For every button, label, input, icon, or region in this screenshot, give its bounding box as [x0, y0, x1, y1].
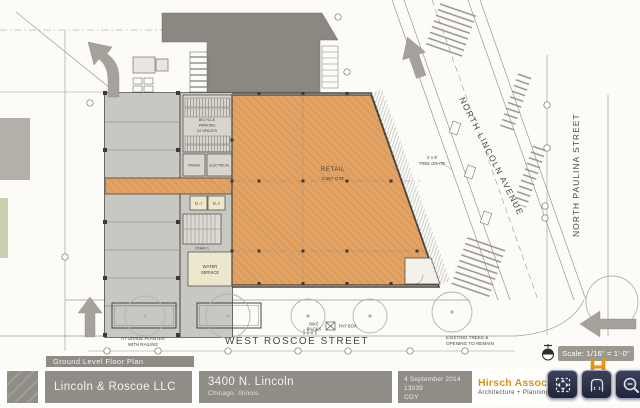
bike-room-label-1: BICYCLE: [199, 118, 216, 122]
planting-strip: [0, 198, 8, 258]
zoom-out-button[interactable]: [615, 370, 640, 399]
project-meta-box: 4 September 2014 13039 CGY: [398, 371, 472, 403]
pan-button[interactable]: ‹ ›: [581, 370, 612, 399]
tree-grate-note-2: TREE GRATE: [419, 161, 446, 166]
fit-arrows-icon: [557, 379, 569, 391]
pan-chevrons: ‹ ›: [593, 383, 601, 392]
bike-racks-note-2: RACKS: [307, 327, 322, 332]
bike-room-label-3: 24 SPACES: [197, 129, 218, 133]
street-label-paulina: NORTH PAULINA STREET: [571, 113, 581, 237]
neighbor-building-west: [0, 118, 30, 180]
water-room-label-2: SERVICE: [201, 270, 220, 275]
corridor: [105, 178, 232, 194]
street-label-roscoe: WEST ROSCOE STREET: [225, 336, 369, 347]
floor-plan-sheet: WEST ROSCOE STREET NORTH LINCOLN AVENUE …: [0, 0, 640, 408]
existing-note-2: OPENING TO REMAIN: [446, 341, 494, 346]
elevator-1-label: EL-1: [195, 202, 203, 206]
client-name: Lincoln & Roscoe LLC: [45, 371, 192, 403]
pay-box-symbol: [326, 322, 335, 330]
north-benchmark-icon: [538, 343, 558, 363]
alley-truck: [133, 57, 168, 73]
project-city: Chicago, Illinois: [208, 390, 392, 397]
planter-note-1: AT GRADE PLANTER: [121, 336, 165, 341]
stair-1-label: STAIR 1: [195, 247, 209, 251]
floor-plan-drawing: WEST ROSCOE STREET NORTH LINCOLN AVENUE …: [0, 0, 640, 362]
water-room-label-1: WATER: [203, 264, 218, 269]
trash-room-label: TRASH: [188, 164, 201, 168]
bike-room-label-2: PARKING: [199, 124, 216, 128]
existing-note-1: EXISTING TREES &: [446, 335, 488, 340]
issue-date: 4 September 2014: [404, 375, 472, 384]
project-number: 13039: [404, 384, 472, 393]
project-address: 3400 N. Lincoln: [208, 376, 392, 388]
electrical-room-label: ELECTRICAL: [209, 164, 230, 168]
elevator-2-label: EL-2: [213, 202, 221, 206]
tree-grate-note-1: 4' x 8': [427, 155, 438, 160]
viewer-toolbar: ‹ ›: [547, 370, 640, 400]
author-initials: CGY: [404, 393, 472, 402]
pay-box-note: PAY BOX: [339, 324, 357, 329]
retail-area-label: 3,567 GSF: [321, 176, 344, 182]
sheet-title-bar: Ground Level Floor Plan: [46, 356, 194, 367]
title-block: Lincoln & Roscoe LLC 3400 N. Lincoln Chi…: [0, 369, 640, 404]
project-address-box: 3400 N. Lincoln Chicago, Illinois: [199, 371, 392, 403]
firm-logo-mark: [7, 371, 38, 403]
retail-label: RETAIL: [321, 167, 345, 173]
planter-note-2: WITH RAILING: [128, 342, 159, 347]
fit-screen-button[interactable]: [547, 370, 578, 399]
